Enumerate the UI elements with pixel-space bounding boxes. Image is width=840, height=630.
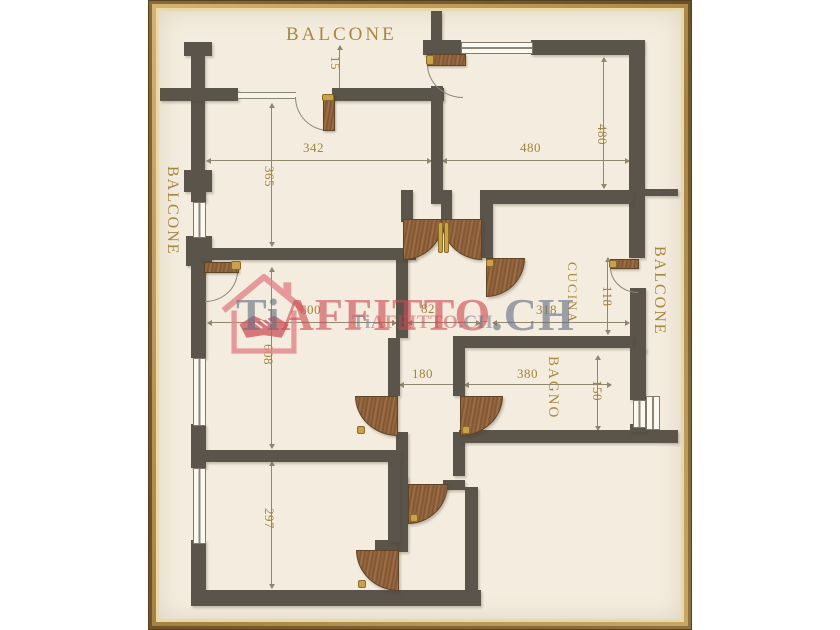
window	[633, 400, 646, 428]
door-handle	[231, 261, 241, 270]
dimension-label-380: 380	[517, 366, 538, 382]
balcony-door-threshold	[238, 92, 296, 99]
wall	[191, 424, 206, 468]
dimension-label-297: 297	[261, 508, 277, 529]
wall	[205, 450, 401, 462]
dimension-label-480-v: 480	[594, 124, 610, 145]
door-handle	[426, 55, 434, 65]
room-label-balcone-right: BALCONE	[650, 246, 668, 336]
dimension-line	[603, 58, 604, 188]
wall	[465, 487, 478, 597]
door-handle	[358, 580, 366, 588]
watermark-prefix: Ti	[352, 312, 371, 333]
dimension-label-15: 15	[327, 56, 343, 70]
wall	[645, 189, 678, 196]
wall	[191, 266, 206, 358]
wall	[184, 42, 212, 56]
wall	[423, 40, 461, 55]
window	[193, 468, 206, 544]
dimension-label-365: 365	[261, 166, 277, 187]
watermark-suffix: .CH	[491, 289, 575, 340]
wall	[332, 88, 444, 101]
framed-floor-plan: 15 342 365 480 480 600 82 318 608 118 18…	[0, 0, 840, 630]
door-handle	[438, 222, 443, 253]
dimension-label-480-h: 480	[520, 140, 541, 156]
door-handle	[410, 514, 418, 522]
wall	[199, 248, 416, 260]
wall	[441, 190, 452, 222]
wall	[629, 40, 645, 258]
wall	[431, 86, 443, 204]
wall	[431, 11, 442, 41]
watermark-prefix: Ti	[236, 289, 281, 340]
door-handle	[486, 259, 494, 267]
wall	[388, 462, 400, 542]
room-label-bagno: BAGNO	[544, 356, 561, 419]
wall	[184, 170, 212, 192]
door-handle	[357, 426, 365, 434]
wall	[388, 338, 400, 396]
window	[193, 202, 206, 238]
wall	[191, 56, 205, 172]
dimension-line	[400, 384, 457, 385]
door-handle	[322, 94, 334, 101]
window-sill	[646, 396, 660, 430]
wall	[480, 190, 633, 204]
dimension-label-180: 180	[412, 366, 433, 382]
dimension-label-150: 150	[589, 380, 605, 401]
wall	[401, 190, 413, 222]
wall	[531, 40, 643, 55]
dimension-label-118: 118	[599, 286, 615, 307]
window	[461, 42, 533, 54]
watermark-text-echo: TiAFFITTO.CH	[352, 312, 493, 334]
dimension-line	[207, 160, 431, 161]
door-handle	[609, 260, 617, 268]
room-label-balcone-top: BALCONE	[286, 24, 397, 46]
wall	[191, 540, 206, 594]
dimension-line	[443, 160, 629, 161]
watermark-suffix: .CH	[458, 312, 493, 333]
watermark-middle: AFFITTO	[371, 312, 459, 333]
wall	[453, 348, 465, 396]
wall	[191, 190, 206, 202]
wall	[630, 348, 646, 400]
door-handle	[444, 222, 449, 253]
wall	[191, 590, 481, 606]
wall	[160, 88, 238, 101]
door-handle	[462, 426, 470, 434]
dimension-label-342: 342	[303, 140, 324, 156]
window	[193, 358, 206, 426]
room-label-balcone-left: BALCONE	[163, 166, 181, 256]
